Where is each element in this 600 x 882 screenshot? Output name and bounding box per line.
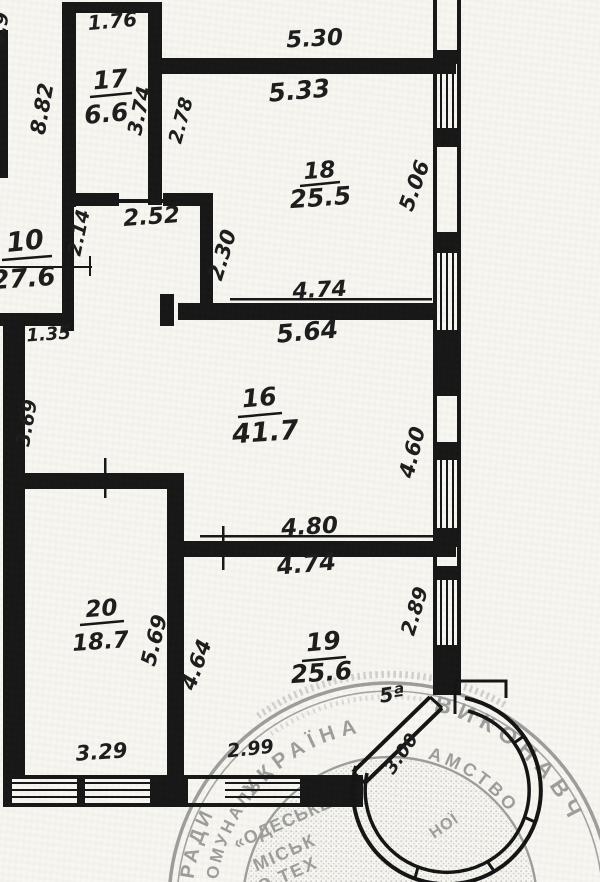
dim-5-06: 5.06 bbox=[394, 157, 434, 214]
room-20-number: 20 bbox=[85, 595, 119, 623]
wall-segment bbox=[433, 528, 461, 547]
window-symbol bbox=[440, 580, 454, 645]
dim-1-76: 1.76 bbox=[87, 7, 138, 35]
room-17-area: 6.6 bbox=[83, 97, 130, 130]
dim-4-60: 4.60 bbox=[394, 424, 430, 481]
dimension-tick bbox=[89, 256, 91, 276]
dim-1-35: 1.35 bbox=[26, 322, 72, 346]
wall-segment bbox=[433, 645, 461, 695]
dim-3-29: 3.29 bbox=[75, 738, 128, 766]
wall-segment bbox=[433, 128, 461, 147]
wall-segment bbox=[0, 30, 8, 178]
room-19-area: 25.6 bbox=[290, 656, 354, 689]
wall-segment bbox=[433, 566, 461, 580]
room-16-number: 16 bbox=[241, 382, 278, 414]
window-symbol bbox=[440, 460, 454, 528]
wall-segment bbox=[433, 442, 461, 460]
floor-plan-drawing: РАДИ ВИКОНАВЧ КОМУНАЛЬ УКРАЇНА АМСТВО «О… bbox=[0, 0, 600, 882]
room-20-area: 18.7 bbox=[71, 627, 129, 657]
room-18-number: 18 bbox=[303, 157, 337, 185]
room-16-area: 41.7 bbox=[230, 415, 300, 451]
wall-segment bbox=[160, 58, 456, 74]
wall-segment bbox=[160, 294, 174, 326]
wall-segment bbox=[433, 232, 461, 253]
dim-5-30: 5.30 bbox=[286, 25, 344, 54]
dim-5-33: 5.33 bbox=[267, 73, 331, 107]
door-opening-line bbox=[118, 199, 166, 203]
wall-segment bbox=[150, 775, 188, 807]
dimension-tick bbox=[104, 458, 107, 498]
wall-segment bbox=[3, 473, 184, 489]
wall-segment bbox=[433, 330, 461, 396]
wall-segment bbox=[77, 775, 85, 807]
room-10-area: 27.6 bbox=[0, 262, 56, 296]
window-symbol bbox=[440, 253, 454, 330]
dim-2-89: 2.89 bbox=[396, 584, 433, 638]
wall-segment bbox=[62, 2, 76, 207]
dim-4-80: 4.80 bbox=[280, 513, 339, 542]
window-symbol bbox=[85, 782, 150, 798]
dim-top-left-partial: 4.9 bbox=[0, 10, 14, 48]
wall-segment bbox=[433, 50, 461, 64]
dim-5-64: 5.64 bbox=[275, 314, 339, 348]
room-18-area: 25.5 bbox=[289, 181, 353, 214]
dimension-tick bbox=[222, 526, 225, 570]
dim-8-82: 8.82 bbox=[26, 81, 59, 136]
wall-segment bbox=[3, 775, 12, 807]
dim-bay-mark: 5ª bbox=[378, 680, 406, 707]
room-19-number: 19 bbox=[305, 626, 342, 658]
dim-4-74-upper: 4.74 bbox=[291, 277, 348, 305]
room-17-number: 17 bbox=[92, 64, 130, 96]
dim-4-74-lower: 4.74 bbox=[275, 548, 337, 581]
dim-2-52: 2.52 bbox=[122, 202, 180, 232]
dim-2-78: 2.78 bbox=[165, 95, 198, 146]
wall-segment bbox=[3, 313, 25, 778]
window-symbol bbox=[12, 782, 77, 798]
room-10-number: 10 bbox=[5, 224, 46, 259]
scanned-floor-plan-page: РАДИ ВИКОНАВЧ КОМУНАЛЬ УКРАЇНА АМСТВО «О… bbox=[0, 0, 600, 882]
dim-5-69: 5.69 bbox=[136, 612, 172, 668]
